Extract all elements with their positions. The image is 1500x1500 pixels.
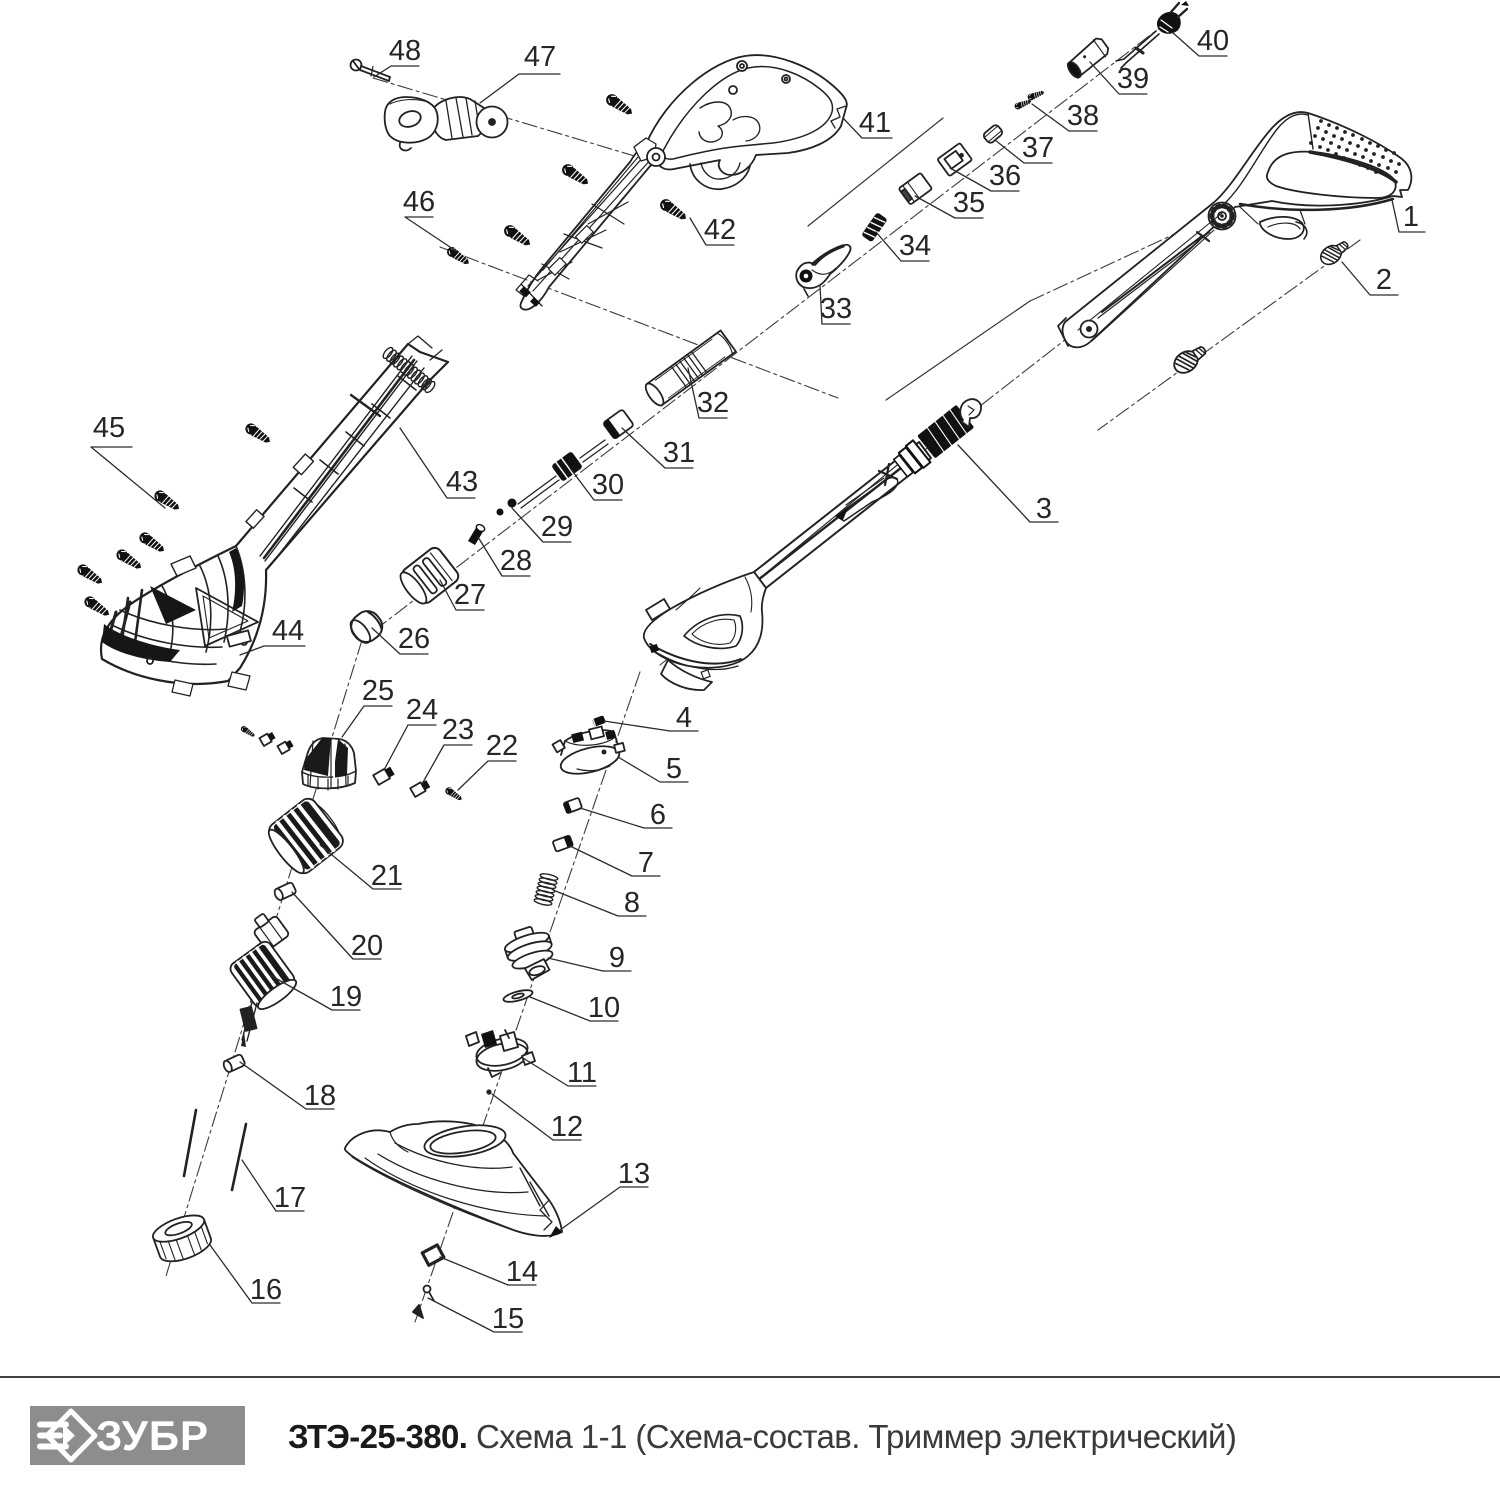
svg-text:15: 15 (492, 1303, 524, 1335)
svg-text:42: 42 (704, 214, 736, 246)
svg-text:22: 22 (486, 730, 518, 762)
svg-text:29: 29 (541, 511, 573, 543)
svg-text:ЗТЭ-25-380. Схема 1-1 (Схема-с: ЗТЭ-25-380. Схема 1-1 (Схема-состав. Три… (288, 1418, 1236, 1455)
svg-text:10: 10 (588, 992, 620, 1024)
svg-text:19: 19 (330, 981, 362, 1013)
svg-text:9: 9 (609, 942, 625, 974)
svg-text:5: 5 (666, 753, 682, 785)
svg-text:13: 13 (618, 1158, 650, 1190)
svg-text:46: 46 (403, 186, 435, 218)
svg-text:27: 27 (454, 579, 486, 611)
svg-text:26: 26 (398, 623, 430, 655)
svg-text:40: 40 (1197, 25, 1229, 57)
svg-text:2: 2 (1376, 264, 1392, 296)
svg-text:30: 30 (592, 469, 624, 501)
svg-text:24: 24 (406, 694, 438, 726)
svg-text:16: 16 (250, 1274, 282, 1306)
svg-text:35: 35 (953, 187, 985, 219)
svg-text:48: 48 (389, 35, 421, 67)
svg-text:33: 33 (820, 293, 852, 325)
svg-text:7: 7 (638, 847, 654, 879)
svg-text:25: 25 (362, 675, 394, 707)
svg-text:41: 41 (859, 107, 891, 139)
svg-text:ЗУБР: ЗУБР (96, 1412, 209, 1459)
svg-text:31: 31 (663, 437, 695, 469)
svg-text:17: 17 (274, 1182, 306, 1214)
svg-text:12: 12 (551, 1111, 583, 1143)
svg-text:18: 18 (304, 1080, 336, 1112)
svg-text:23: 23 (442, 714, 474, 746)
svg-text:45: 45 (93, 412, 125, 444)
svg-text:3: 3 (1036, 493, 1052, 525)
svg-text:21: 21 (371, 860, 403, 892)
svg-text:39: 39 (1117, 63, 1149, 95)
svg-text:44: 44 (272, 615, 304, 647)
svg-text:6: 6 (650, 799, 666, 831)
svg-text:32: 32 (697, 387, 729, 419)
svg-text:34: 34 (899, 230, 931, 262)
svg-text:20: 20 (351, 930, 383, 962)
svg-text:11: 11 (567, 1057, 597, 1089)
svg-text:8: 8 (624, 887, 640, 919)
svg-text:14: 14 (506, 1256, 538, 1288)
svg-text:28: 28 (500, 545, 532, 577)
svg-text:37: 37 (1022, 132, 1054, 164)
svg-text:1: 1 (1403, 201, 1419, 233)
svg-text:36: 36 (989, 160, 1021, 192)
svg-text:4: 4 (676, 702, 692, 734)
svg-text:47: 47 (524, 41, 556, 73)
svg-text:38: 38 (1067, 100, 1099, 132)
svg-text:43: 43 (446, 466, 478, 498)
